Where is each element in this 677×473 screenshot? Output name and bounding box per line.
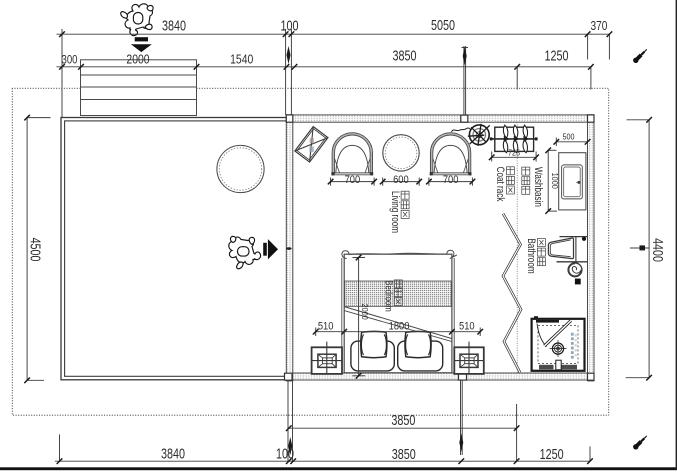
svg-text:3850: 3850 [392,445,416,462]
svg-text:1800: 1800 [389,321,410,333]
svg-text:3840: 3840 [161,445,185,462]
svg-text:4500: 4500 [27,238,44,262]
svg-text:600: 600 [393,175,409,187]
svg-text:2000: 2000 [126,52,150,66]
svg-text:725: 725 [508,148,521,158]
svg-text:1250: 1250 [545,47,569,64]
svg-text:1540: 1540 [230,52,254,66]
svg-text:Washbasin: Washbasin [532,167,545,207]
svg-text:5050: 5050 [431,16,455,33]
svg-text:3850: 3850 [393,47,417,64]
svg-text:700: 700 [345,175,361,187]
svg-text:3840: 3840 [162,17,186,34]
svg-text:100: 100 [276,445,294,462]
svg-text:100: 100 [281,17,299,34]
svg-text:500: 500 [562,132,575,142]
svg-text:1250: 1250 [540,445,564,462]
svg-text:4400: 4400 [649,238,666,262]
svg-text:Bathroom: Bathroom [525,238,538,273]
svg-text:Bedroom: Bedroom [383,280,394,312]
svg-text:510: 510 [459,321,475,333]
svg-text:510: 510 [318,321,334,333]
svg-text:Living room: Living room [388,191,401,233]
svg-text:370: 370 [591,19,608,33]
svg-text:3850: 3850 [391,411,415,428]
svg-text:1000: 1000 [550,173,560,190]
svg-text:300: 300 [61,53,77,66]
svg-text:2000: 2000 [360,304,370,321]
svg-text:Coat rack: Coat rack [494,167,507,202]
svg-text:700: 700 [443,175,459,187]
